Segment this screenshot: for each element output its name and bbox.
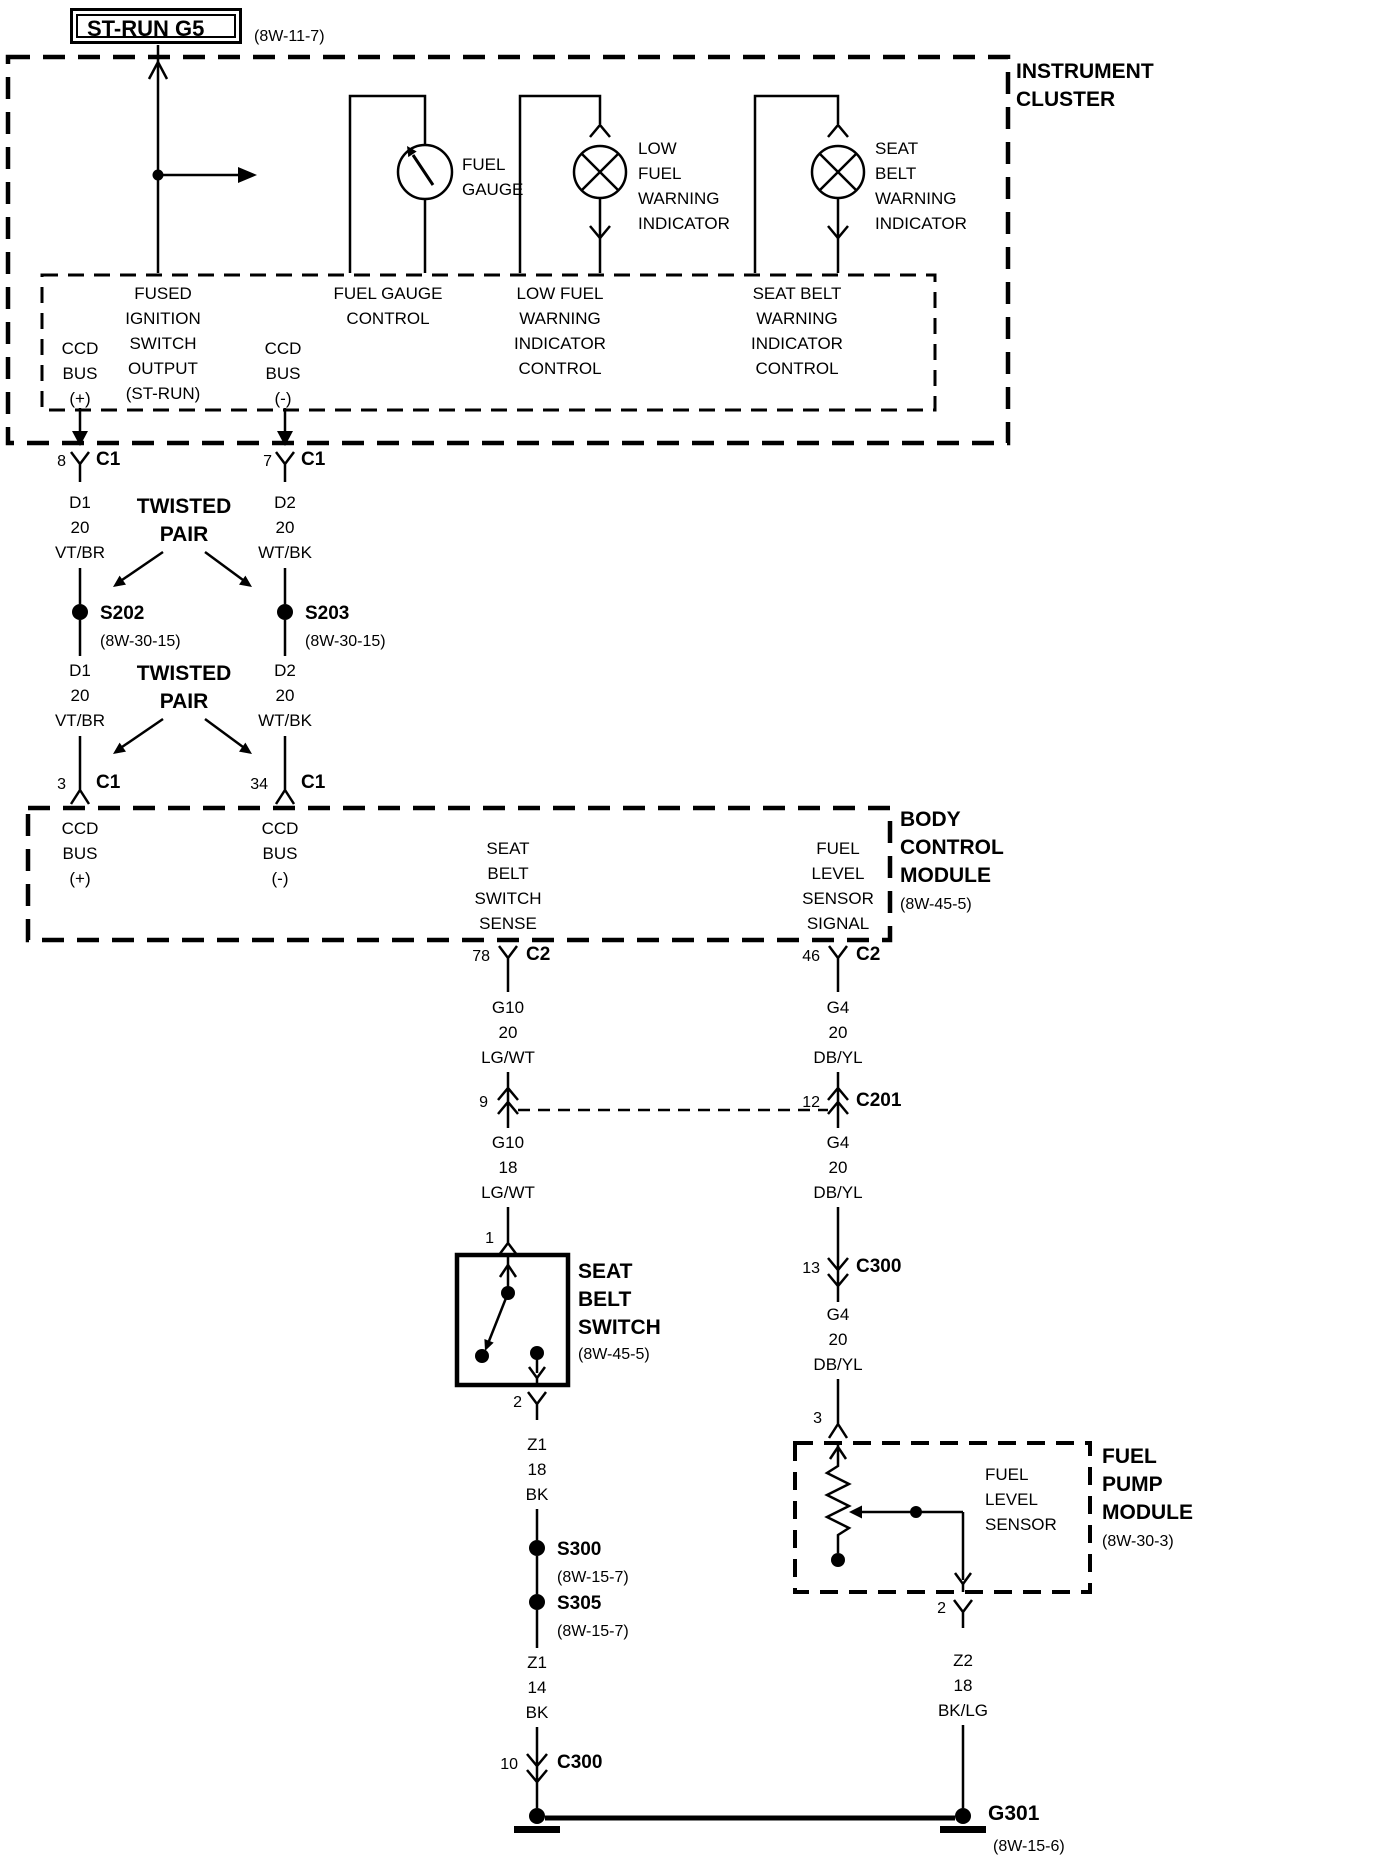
wire-label-z1-lower: Z1 14 BK xyxy=(526,1650,549,1725)
body-control-module-box xyxy=(28,808,890,940)
connector-pin-13: 13 xyxy=(802,1256,820,1281)
connector-c1-bcm-right-label: C1 xyxy=(301,770,325,795)
cluster-pin-fused-ignition: FUSED IGNITION SWITCH OUTPUT (ST-RUN) xyxy=(125,281,201,406)
connector-c2-left-label: C2 xyxy=(526,942,550,967)
bcm-pin-ccd-plus: CCD BUS (+) xyxy=(62,816,99,891)
twisted-pair-label-lower: TWISTED PAIR xyxy=(137,660,232,716)
connector-pin-9: 9 xyxy=(479,1090,488,1115)
connector-c201-right-icon xyxy=(828,1086,848,1122)
splice-s300-label: S300 xyxy=(557,1537,601,1562)
connector-pin-78: 78 xyxy=(472,944,490,969)
power-feed-wire xyxy=(149,45,257,273)
wire-label-d1-lower: D1 20 VT/BR xyxy=(55,658,105,733)
fuel-level-signal-wire xyxy=(828,1072,848,1438)
splice-dot-s203 xyxy=(277,604,293,620)
wire-label-z1-upper: Z1 18 BK xyxy=(526,1432,549,1507)
seat-belt-switch-icon xyxy=(475,1255,545,1385)
twisted-pair-arrows-upper xyxy=(113,552,252,587)
connector-c300-10-icon xyxy=(527,1742,547,1792)
bcm-c2-connectors xyxy=(499,946,847,992)
connector-c1-right-label: C1 xyxy=(301,447,325,472)
cluster-pin-low-fuel-control: LOW FUEL WARNING INDICATOR CONTROL xyxy=(514,281,606,381)
ground-g301-ref: (8W-15-6) xyxy=(993,1834,1065,1859)
splice-s203-ref: (8W-30-15) xyxy=(305,629,386,654)
wire-label-g10-upper: G10 20 LG/WT xyxy=(481,995,535,1070)
wire-label-d2-lower: D2 20 WT/BK xyxy=(258,658,312,733)
connector-c300-13-icon xyxy=(828,1246,848,1296)
instrument-cluster-title: INSTRUMENT CLUSTER xyxy=(1016,58,1154,114)
wire-label-g4-mid: G4 20 DB/YL xyxy=(813,1130,862,1205)
connector-c300-13-label: C300 xyxy=(856,1254,901,1279)
cluster-pin-ccd-minus: CCD BUS (-) xyxy=(265,336,302,411)
fuel-gauge-label: FUEL GAUGE xyxy=(462,152,523,202)
wire-label-d1-upper: D1 20 VT/BR xyxy=(55,490,105,565)
connector-pin-3-bcm: 3 xyxy=(57,772,66,797)
low-fuel-lamp-branch xyxy=(520,96,626,273)
connector-c201-label: C201 xyxy=(856,1088,901,1113)
seat-belt-switch-ref: (8W-45-5) xyxy=(578,1342,650,1367)
splice-s202-ref: (8W-30-15) xyxy=(100,629,181,654)
seat-belt-switch-box xyxy=(457,1255,568,1385)
fuel-level-sensor-icon xyxy=(827,1443,971,1592)
seat-belt-switch-pin-1: 1 xyxy=(485,1226,494,1251)
splice-dot-s202 xyxy=(72,604,88,620)
ground-g301-label: G301 xyxy=(988,1800,1039,1828)
bcm-pin-seat-belt-sense: SEAT BELT SWITCH SENSE xyxy=(474,836,541,936)
splice-s305-ref: (8W-15-7) xyxy=(557,1619,629,1644)
connector-pin-7: 7 xyxy=(263,449,272,474)
seat-belt-lamp-branch xyxy=(755,96,864,273)
fuel-gauge-branch xyxy=(350,96,452,273)
low-fuel-indicator-label: LOW FUEL WARNING INDICATOR xyxy=(638,136,730,236)
seat-belt-switch-pin-2: 2 xyxy=(513,1390,522,1415)
wiring-diagram: ST-RUN G5 (8W-11-7) INSTRUMENT CLUSTER F… xyxy=(0,0,1376,1868)
cluster-pin-seat-belt-control: SEAT BELT WARNING INDICATOR CONTROL xyxy=(751,281,843,381)
connector-pin-12: 12 xyxy=(802,1090,820,1115)
fuel-pump-pin-3: 3 xyxy=(813,1406,822,1431)
connector-c1-left-label: C1 xyxy=(96,447,120,472)
connector-pin-46: 46 xyxy=(802,944,820,969)
power-source-ref: (8W-11-7) xyxy=(254,24,325,49)
wire-label-g10-lower: G10 18 LG/WT xyxy=(481,1130,535,1205)
twisted-pair-arrows-lower xyxy=(113,719,252,754)
cluster-pin-fuel-gauge-control: FUEL GAUGE CONTROL xyxy=(334,281,443,331)
power-source-box: ST-RUN G5 xyxy=(70,8,242,44)
fuel-level-sensor-label: FUEL LEVEL SENSOR xyxy=(985,1462,1057,1537)
connector-c2-right-label: C2 xyxy=(856,942,880,967)
splice-s202-label: S202 xyxy=(100,601,144,626)
splice-s305-label: S305 xyxy=(557,1591,601,1616)
resistor-icon xyxy=(827,1462,849,1553)
splice-dot-s300 xyxy=(529,1540,545,1556)
seat-belt-switch-title: SEAT BELT SWITCH xyxy=(578,1258,661,1342)
splice-s300-ref: (8W-15-7) xyxy=(557,1565,629,1590)
bcm-ref: (8W-45-5) xyxy=(900,892,972,917)
wire-label-g4-lower: G4 20 DB/YL xyxy=(813,1302,862,1377)
connector-pin-34-bcm: 34 xyxy=(250,772,268,797)
splice-s203-label: S203 xyxy=(305,601,349,626)
connector-c300-10-label: C300 xyxy=(557,1750,602,1775)
wire-label-d2-upper: D2 20 WT/BK xyxy=(258,490,312,565)
splice-dot-s305 xyxy=(529,1594,545,1610)
fuel-pump-module-ref: (8W-30-3) xyxy=(1102,1529,1174,1554)
bcm-pin-ccd-minus: CCD BUS (-) xyxy=(262,816,299,891)
twisted-pair-label-upper: TWISTED PAIR xyxy=(137,493,232,549)
bcm-pin-fuel-level-signal: FUEL LEVEL SENSOR SIGNAL xyxy=(802,836,874,936)
connector-c1-bcm-left-label: C1 xyxy=(96,770,120,795)
wire-label-z2: Z2 18 BK/LG xyxy=(938,1648,988,1723)
wire-label-g4-upper: G4 20 DB/YL xyxy=(813,995,862,1070)
connector-pin-8: 8 xyxy=(57,449,66,474)
cluster-pin-ccd-plus: CCD BUS (+) xyxy=(62,336,99,411)
fuel-pump-pin-2: 2 xyxy=(937,1596,946,1621)
ccd-bus-exit-arrows xyxy=(72,408,293,446)
bcm-title: BODY CONTROL MODULE xyxy=(900,806,1004,890)
fuel-pump-module-title: FUEL PUMP MODULE xyxy=(1102,1443,1193,1527)
seat-belt-indicator-label: SEAT BELT WARNING INDICATOR xyxy=(875,136,967,236)
connector-pin-10: 10 xyxy=(500,1752,518,1777)
connector-c201-left-icon xyxy=(498,1086,518,1122)
wiring-artwork xyxy=(0,0,1376,1868)
